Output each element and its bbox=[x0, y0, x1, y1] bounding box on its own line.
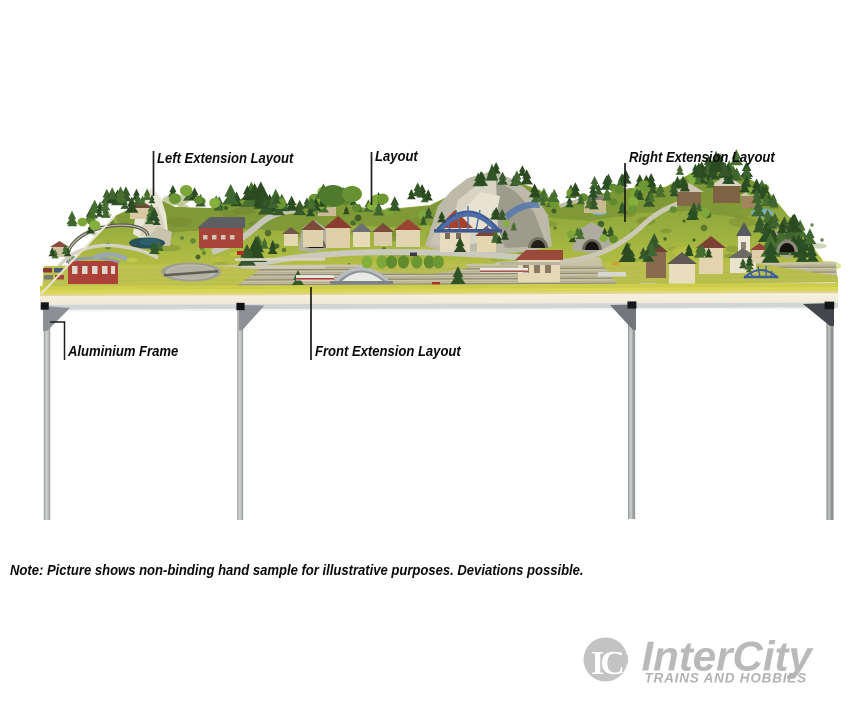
svg-text:TRAINS AND HOBBIES: TRAINS AND HOBBIES bbox=[645, 671, 807, 686]
svg-text:IC: IC bbox=[591, 645, 622, 682]
